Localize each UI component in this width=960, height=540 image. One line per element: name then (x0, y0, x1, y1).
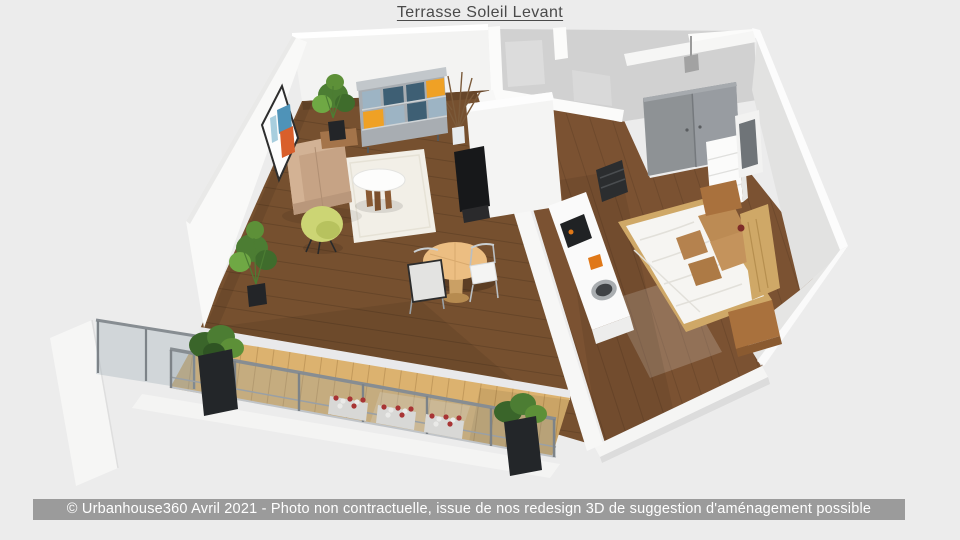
planter-left (198, 349, 238, 416)
wall-tv (735, 110, 763, 178)
door-ghost-2 (572, 70, 612, 106)
floorplan-render: Terrasse Soleil Levant © Urbanhouse360 A… (0, 0, 960, 540)
egg-chair (301, 206, 343, 254)
page-title: Terrasse Soleil Levant (0, 4, 960, 22)
planter-right (504, 416, 542, 476)
apartment-3d-scene (0, 0, 960, 540)
door-ghost-1 (505, 40, 545, 87)
watermark-footer: © Urbanhouse360 Avril 2021 - Photo non c… (33, 499, 905, 520)
